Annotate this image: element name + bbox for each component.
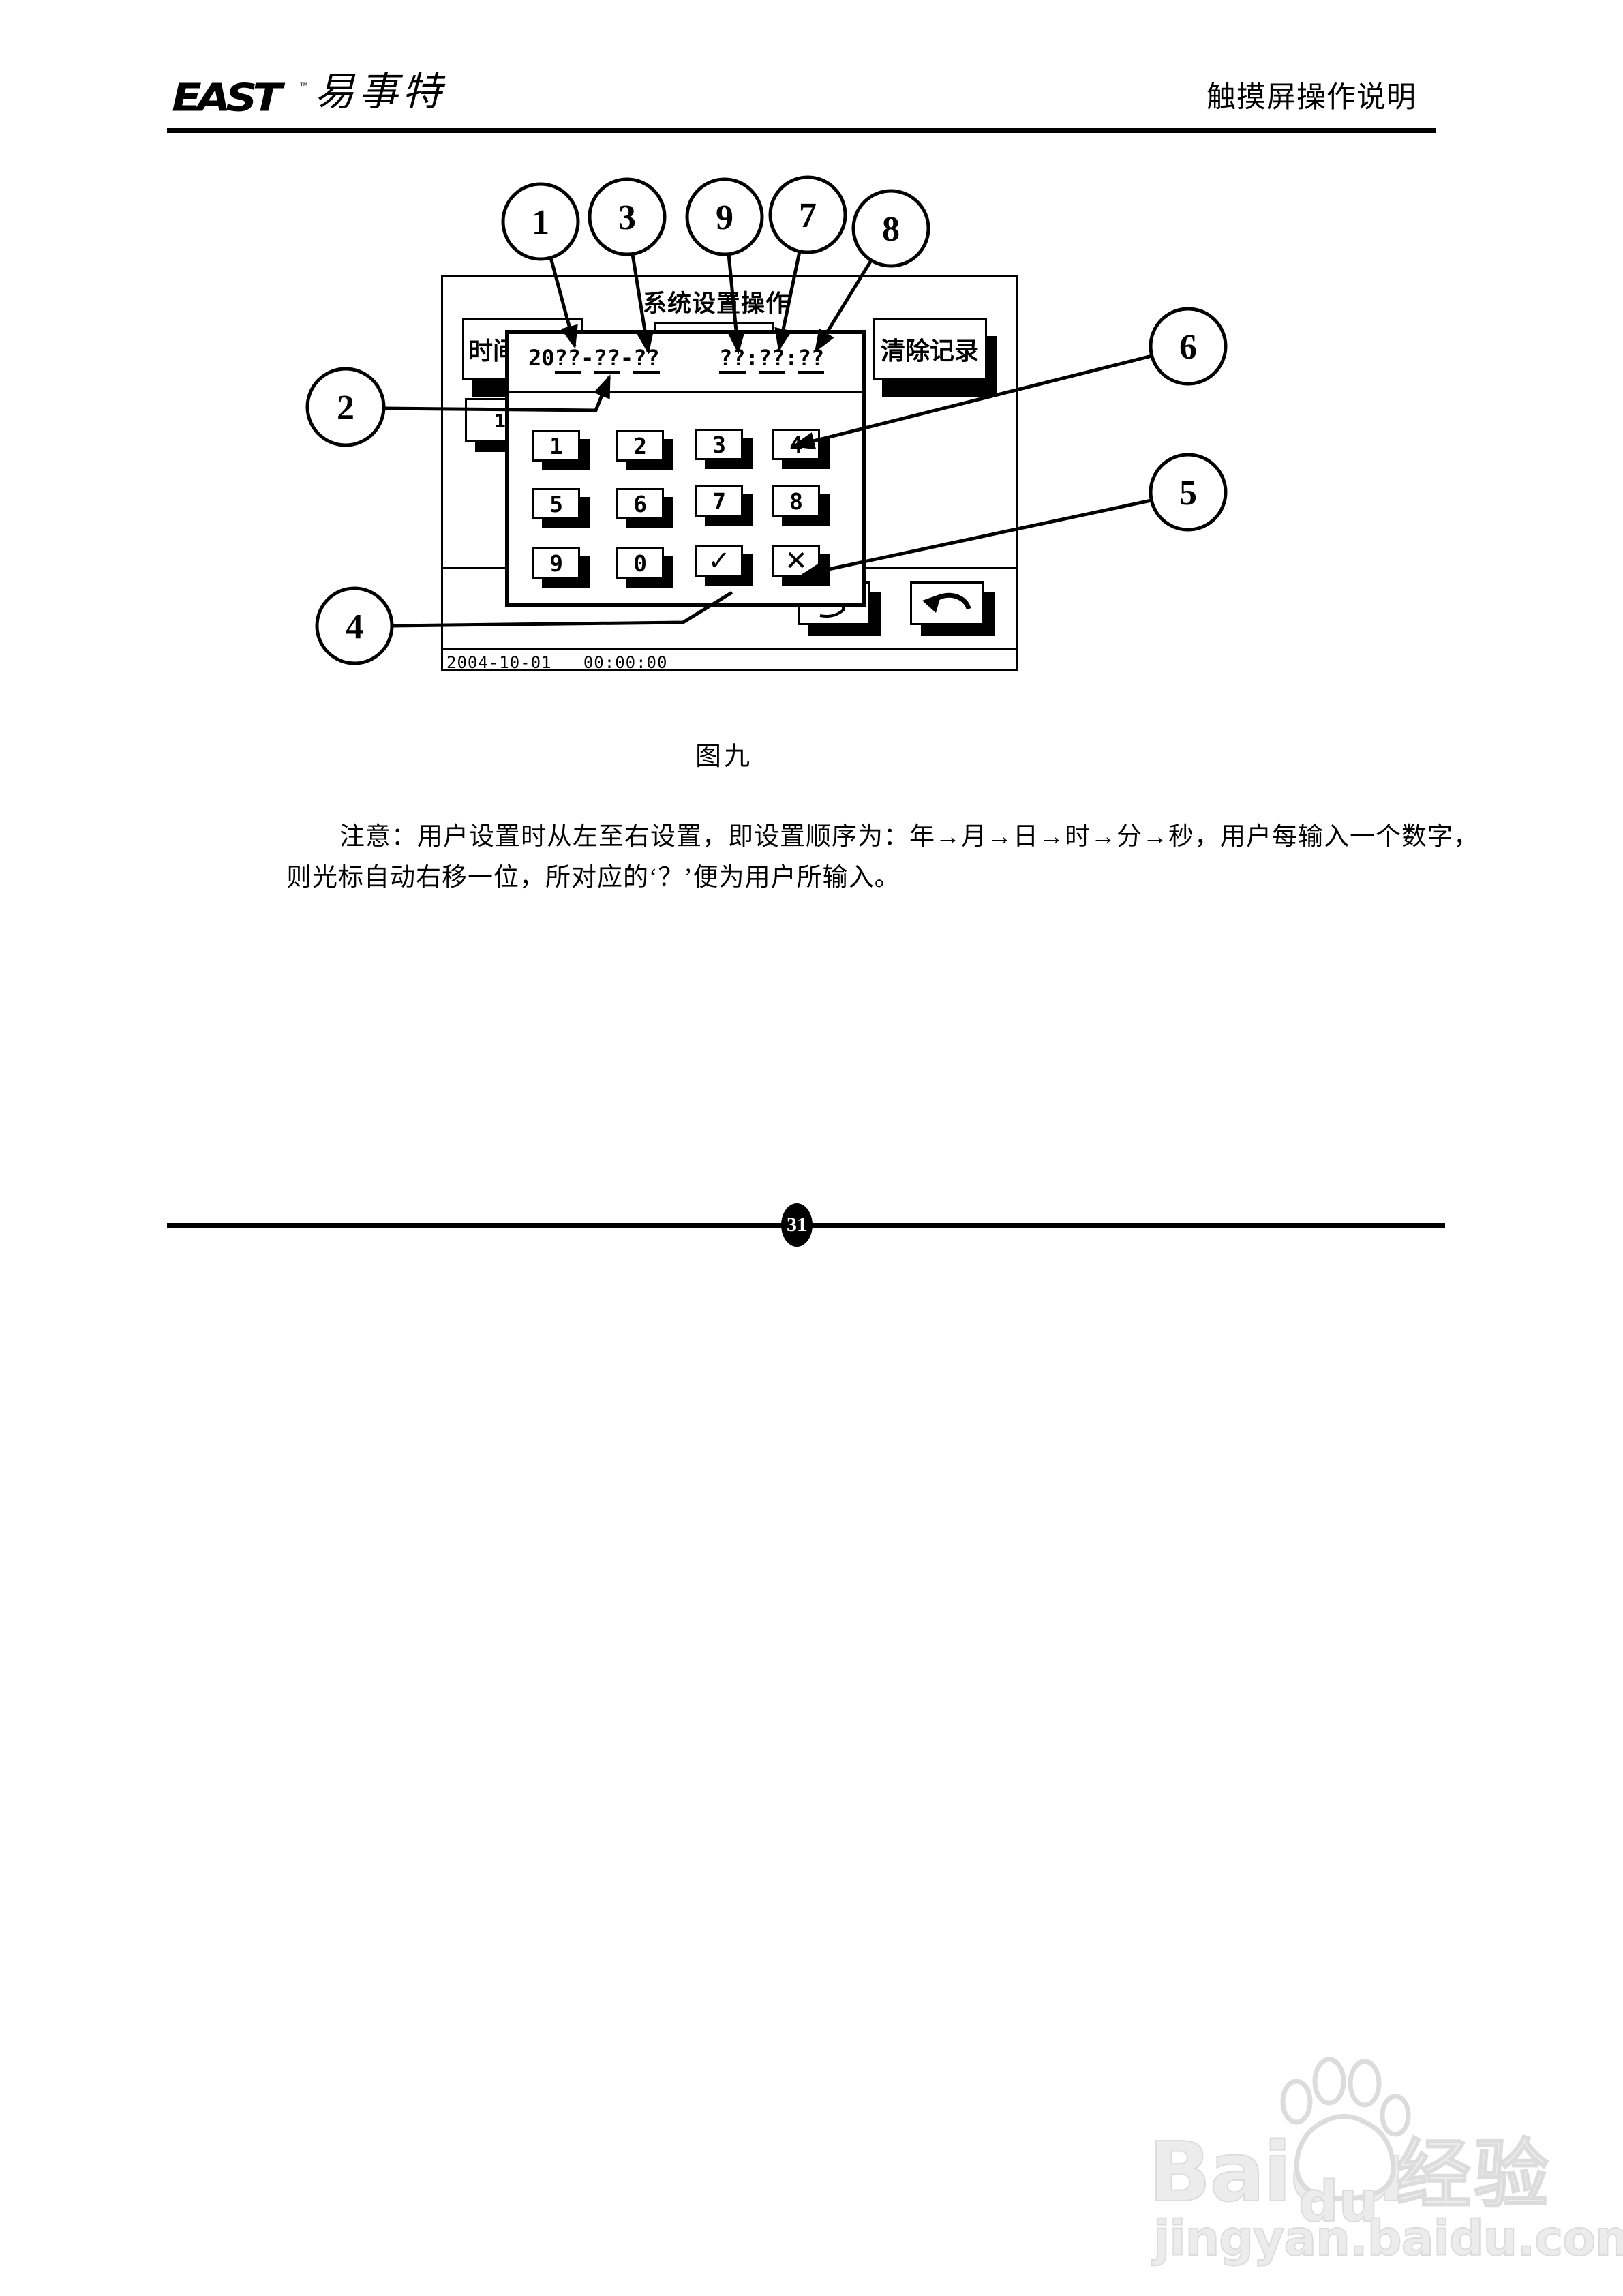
callout-circle-4 [317, 588, 392, 663]
note-line-2: 则光标自动右移一位，所对应的‘？’便为用户所输入。 [286, 862, 900, 894]
hidden-button-fragment: 1 [494, 410, 506, 432]
callout-circle-2 [307, 369, 384, 445]
time-colon: : [785, 345, 798, 371]
trademark-mark: ™ [299, 80, 309, 93]
figure-caption: 图九 [695, 735, 753, 772]
date-dash: - [620, 345, 633, 371]
return-arrow-icon [915, 586, 978, 621]
keypad-key-1[interactable]: 1 [532, 430, 580, 462]
page-number-badge: 31 [781, 1203, 813, 1247]
callout-circle-6 [1151, 309, 1226, 384]
keypad-key-6[interactable]: 6 [616, 488, 664, 519]
keypad-key-2[interactable]: 2 [616, 430, 664, 462]
time-minute-field[interactable]: ?? [759, 347, 785, 374]
time-colon: : [746, 345, 759, 371]
callout-circle-9 [687, 179, 762, 254]
callout-number-8: 8 [882, 210, 900, 249]
callout-number-5: 5 [1179, 474, 1197, 513]
document-title: 触摸屏操作说明 [1207, 80, 1416, 116]
watermark-suffix: 经验 [1396, 2137, 1551, 2212]
callout-number-4: 4 [346, 607, 363, 646]
datetime-keypad-dialog: 20??-??-?? ??:??:?? 1 2 3 4 5 6 7 8 9 0 … [505, 330, 866, 607]
east-logo: EAST [172, 79, 277, 117]
callout-number-3: 3 [618, 198, 636, 237]
callout-circle-1 [503, 184, 578, 259]
header-divider [167, 128, 1436, 133]
callout-circle-8 [853, 191, 928, 266]
dialog-separator [509, 391, 862, 393]
date-century: 20 [528, 345, 555, 371]
keypad-key-8[interactable]: 8 [772, 485, 820, 517]
brand-chinese: 易事特 [315, 72, 446, 112]
date-dash: - [581, 345, 594, 371]
time-hour-field[interactable]: ?? [719, 347, 746, 374]
date-year-field[interactable]: ?? [555, 347, 581, 374]
callout-number-1: 1 [532, 203, 549, 242]
watermark-url: jingyan.baidu.com [1153, 2214, 1623, 2263]
touchscreen-frame: 系统设置操作 时间设置 清除记录 1 [441, 275, 1018, 671]
callout-number-6: 6 [1179, 328, 1197, 367]
keypad-key-0[interactable]: 0 [616, 547, 664, 579]
return-button[interactable] [910, 581, 984, 625]
date-month-field[interactable]: ?? [594, 347, 620, 374]
keypad-confirm-key[interactable]: ✓ [695, 545, 743, 577]
callout-circle-5 [1151, 455, 1226, 530]
time-second-field[interactable]: ?? [798, 347, 825, 374]
note-line-1: 注意：用户设置时从左至右设置，即设置顺序为：年→月→日→时→分→秒，用户每输入一… [339, 821, 1479, 854]
callout-circle-7 [770, 177, 845, 252]
keypad-key-3[interactable]: 3 [695, 429, 743, 460]
status-datetime: 2004-10-01 00:00:00 [446, 653, 667, 672]
keypad-key-9[interactable]: 9 [532, 547, 580, 579]
screen-title: 系统设置操作 [643, 284, 790, 319]
callout-number-2: 2 [337, 389, 354, 427]
callout-number-7: 7 [799, 196, 817, 235]
date-display: 20??-??-?? [528, 346, 660, 374]
callout-circle-3 [590, 179, 665, 254]
callout-number-9: 9 [716, 198, 733, 237]
keypad-key-5[interactable]: 5 [532, 488, 580, 519]
date-day-field[interactable]: ?? [633, 347, 660, 374]
keypad-key-7[interactable]: 7 [695, 485, 743, 517]
time-display: ??:??:?? [719, 346, 824, 374]
status-bar-divider [443, 648, 1016, 650]
keypad-cancel-key[interactable]: ✕ [772, 545, 820, 577]
keypad-key-4[interactable]: 4 [772, 429, 820, 460]
manual-page: EAST ™ 易事特 触摸屏操作说明 系统设置操作 时间设置 清除记录 1 [0, 0, 1623, 2296]
clear-records-button[interactable]: 清除记录 [873, 318, 987, 380]
clear-records-label: 清除记录 [881, 331, 979, 367]
